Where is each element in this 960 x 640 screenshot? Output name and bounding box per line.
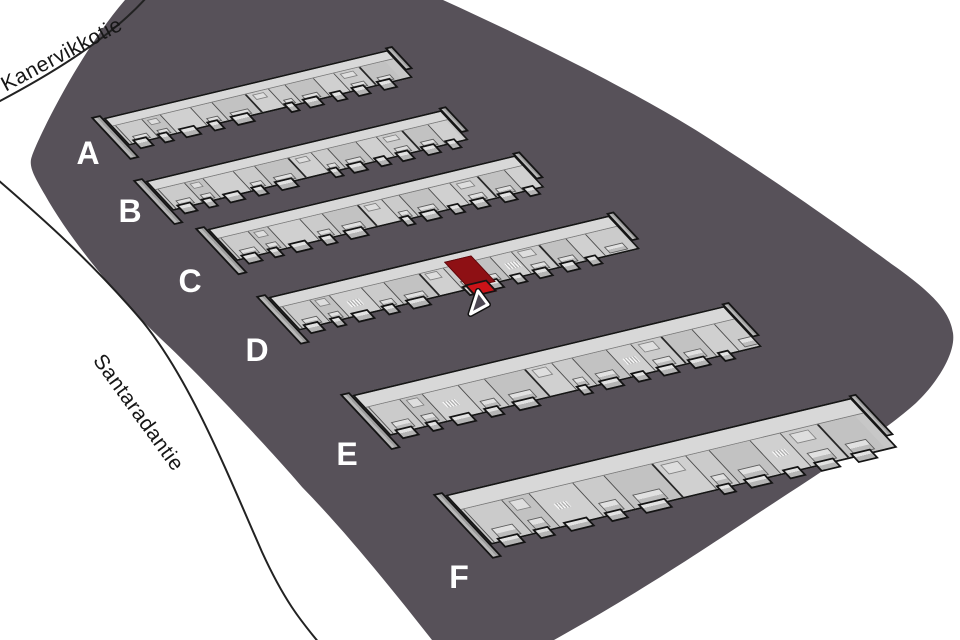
vent-grid (346, 299, 364, 308)
building-label-e: E (336, 438, 357, 470)
skylight (146, 118, 161, 126)
skylight (382, 134, 401, 143)
building-row-f[interactable] (445, 398, 898, 545)
skylight (425, 271, 443, 280)
unit-door-stoop (604, 242, 628, 253)
vent-grid (553, 501, 571, 510)
skylight (637, 341, 661, 353)
skylight (456, 180, 476, 190)
building-row-e[interactable] (352, 306, 762, 436)
skylight (531, 366, 553, 377)
skylight (517, 249, 537, 259)
skylight (508, 498, 531, 511)
skylight (660, 461, 687, 475)
vent-grid (623, 356, 641, 365)
building-label-a: A (76, 137, 99, 169)
vent-grid (504, 261, 522, 270)
skylight (405, 397, 424, 408)
skylight (253, 230, 269, 239)
building-label-b: B (118, 195, 141, 227)
building-label-f: F (449, 561, 469, 593)
skylight (251, 92, 268, 100)
skylight (363, 203, 381, 212)
skylight (788, 429, 817, 444)
skylight (189, 181, 204, 189)
building-rows-layer (0, 0, 960, 640)
skylight (294, 156, 311, 165)
roof-shell (352, 306, 762, 436)
vent-grid (442, 399, 460, 408)
skylight (339, 70, 357, 78)
site-map-canvas: Kanervikkotie Santaradantie ABCDEF (0, 0, 960, 640)
building-label-d: D (245, 334, 268, 366)
building-label-c: C (178, 265, 201, 297)
unit-door-stoop (737, 335, 762, 348)
roof-shell (445, 398, 898, 545)
skylight (315, 298, 331, 307)
vent-grid (771, 449, 789, 458)
